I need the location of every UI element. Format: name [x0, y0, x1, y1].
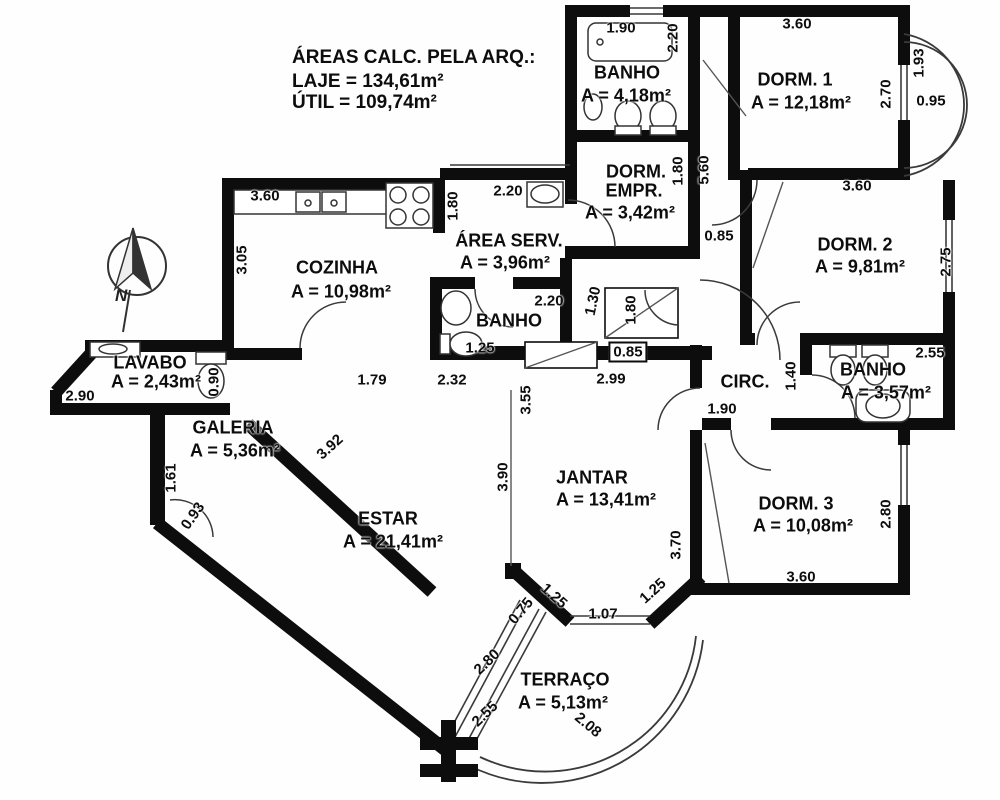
room-label-terraco: TERRAÇO: [521, 670, 610, 691]
dimension-label: 2.20: [534, 293, 563, 310]
dimension-label: 1.79: [357, 372, 386, 389]
room-label-dorm-empr: DORM.: [606, 162, 666, 183]
dimension-label: 1.80: [623, 295, 640, 324]
dimension-label: 3.55: [518, 385, 535, 414]
dimension-label: 1.80: [445, 191, 462, 220]
dimension-label: 3.90: [495, 462, 512, 491]
room-label-dorm-empr: EMPR.: [605, 181, 662, 202]
dimension-label: 1.61: [163, 463, 180, 492]
room-label-area-serv: ÁREA SERV.: [455, 231, 562, 252]
dimension-label: 3.60: [250, 188, 279, 205]
room-label-circ: CIRC.: [721, 372, 770, 393]
dimension-label: 1.25: [465, 340, 494, 357]
room-label-dorm-empr: A = 3,42m²: [585, 203, 675, 224]
floor-plan: ÁREAS CALC. PELA ARQ.: LAJE = 134,61m² Ú…: [0, 0, 1000, 800]
dimension-label: 3.60: [782, 16, 811, 33]
header-util: ÚTIL = 109,74m²: [292, 92, 437, 114]
dimension-label: 2.70: [878, 79, 895, 108]
north-arrow-icon: [108, 228, 166, 332]
room-label-banho-suite: A = 3,57m²: [841, 383, 931, 404]
dimension-label: 3.05: [234, 245, 251, 274]
room-label-dorm-1: A = 12,18m²: [751, 93, 851, 114]
room-label-galeria: A = 5,36m²: [190, 441, 280, 462]
room-label-dorm-3: A = 10,08m²: [753, 516, 853, 537]
room-label-dorm-1: DORM. 1: [757, 70, 832, 91]
room-label-dorm-2: DORM. 2: [817, 235, 892, 256]
dimension-label: 2.20: [493, 183, 522, 200]
room-label-jantar: A = 13,41m²: [556, 490, 656, 511]
dimension-label: 2.20: [665, 23, 682, 52]
room-label-terraco: A = 5,13m²: [518, 693, 608, 714]
room-label-area-serv: A = 3,96m²: [460, 253, 550, 274]
stove-icon: [386, 183, 433, 228]
dimension-label: 0.85: [608, 342, 647, 363]
dimension-label: 2.90: [65, 388, 94, 405]
room-label-dorm-2: A = 9,81m²: [815, 257, 905, 278]
room-label-banho-superior: A = 4,18m²: [581, 86, 671, 107]
room-label-banho-superior: BANHO: [594, 63, 660, 84]
room-label-banho-suite: BANHO: [840, 360, 906, 381]
header-laje: LAJE = 134,61m²: [292, 71, 444, 93]
room-label-banho-meio: BANHO: [476, 311, 542, 332]
dimension-label: 1.93: [911, 48, 928, 77]
dimension-label: 5.60: [696, 155, 713, 184]
laundry-tank-icon: [527, 182, 563, 207]
dimension-label: 2.75: [938, 247, 955, 276]
dimension-label: 1.40: [783, 361, 800, 390]
room-label-estar: A = 21,41m²: [343, 532, 443, 553]
north-label: N: [115, 286, 127, 306]
dimension-label: 3.60: [842, 178, 871, 195]
dimension-label: 0.95: [916, 93, 945, 110]
dimension-label: 0.90: [206, 367, 223, 396]
dimension-label: 2.80: [878, 499, 895, 528]
room-label-jantar: JANTAR: [556, 468, 628, 489]
room-label-galeria: GALERIA: [193, 418, 274, 439]
dimension-label: 1.90: [707, 401, 736, 418]
dimension-label: 2.32: [437, 372, 466, 389]
room-label-estar: ESTAR: [358, 509, 418, 530]
dimension-label: 0.85: [704, 228, 733, 245]
dimension-label: 3.70: [668, 530, 685, 559]
room-label-lavabo: LAVABO: [113, 353, 186, 374]
dimension-label: 1.80: [670, 156, 687, 185]
dimension-label: 1.07: [588, 606, 617, 623]
dimension-label: 1.90: [606, 20, 635, 37]
dimension-label: 2.55: [915, 345, 944, 362]
dimension-label: 2.99: [596, 371, 625, 388]
dimension-label: 3.60: [786, 569, 815, 586]
room-label-cozinha: COZINHA: [296, 258, 378, 279]
room-label-dorm-3: DORM. 3: [758, 494, 833, 515]
room-label-lavabo: A = 2,43m²: [111, 372, 201, 393]
sink-icon: [441, 291, 471, 325]
room-label-cozinha: A = 10,98m²: [291, 282, 391, 303]
header-title: ÁREAS CALC. PELA ARQ.:: [292, 47, 535, 69]
